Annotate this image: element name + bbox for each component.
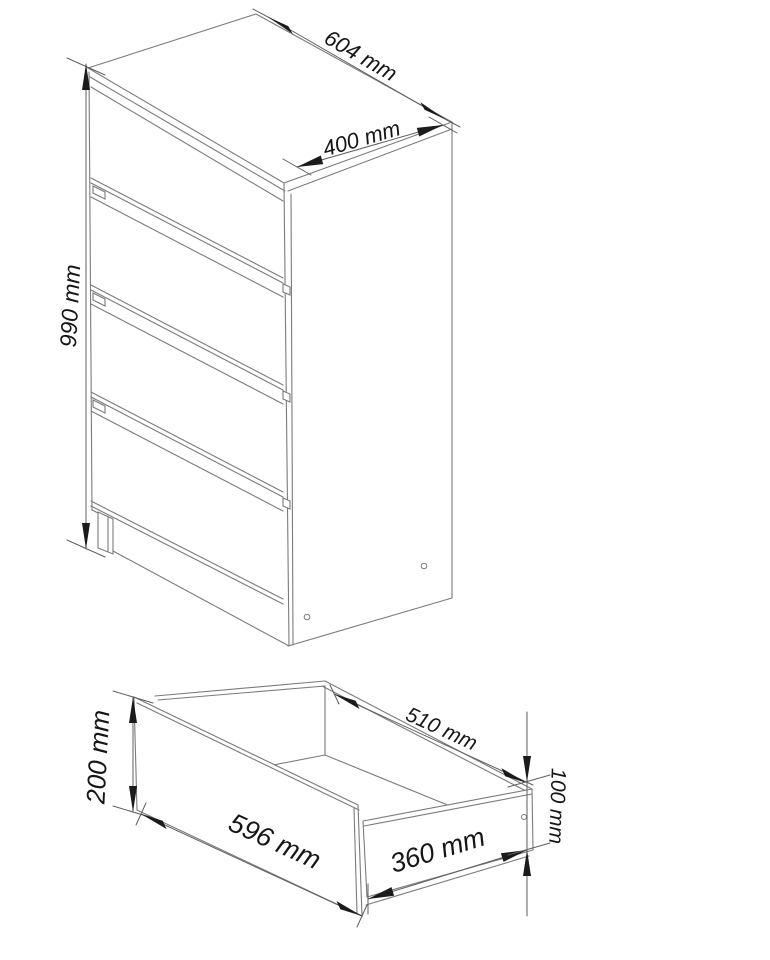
- side-panel-hole: [304, 614, 310, 620]
- drawer-gap-steps: [93, 186, 290, 509]
- dimension-label-side-height: 100 mm: [544, 768, 570, 845]
- cabinet-view: 990 mm 604 mm 400 mm: [55, 9, 460, 646]
- arrowhead: [523, 850, 531, 876]
- side-panel-hole: [522, 815, 527, 820]
- side-panel-hole: [421, 563, 427, 569]
- arrowhead: [82, 523, 90, 549]
- technical-drawing-page: 990 mm 604 mm 400 mm: [0, 0, 770, 960]
- cabinet-side-front-edge: [291, 194, 293, 645]
- arrowhead: [523, 756, 531, 782]
- cabinet-front-left-edge: [89, 72, 92, 510]
- dimension-label-height: 990 mm: [55, 264, 85, 348]
- dimension-label-front-height: 200 mm: [80, 709, 115, 805]
- cabinet-side-panel: [288, 122, 452, 646]
- drawer-front-panel: [134, 697, 362, 916]
- arrowhead: [129, 786, 137, 812]
- drawer-front-4: [91, 411, 283, 604]
- drawer-front-3: [91, 304, 283, 497]
- cabinet-front-right-edge: [284, 184, 289, 645]
- cabinet-top-face: [88, 14, 452, 183]
- technical-drawing: 990 mm 604 mm 400 mm: [0, 0, 770, 960]
- cabinet-plinth: [92, 510, 289, 646]
- drawer-view: 200 mm 596 mm 510 mm 360 mm: [80, 681, 569, 927]
- drawer-front-2: [91, 197, 283, 390]
